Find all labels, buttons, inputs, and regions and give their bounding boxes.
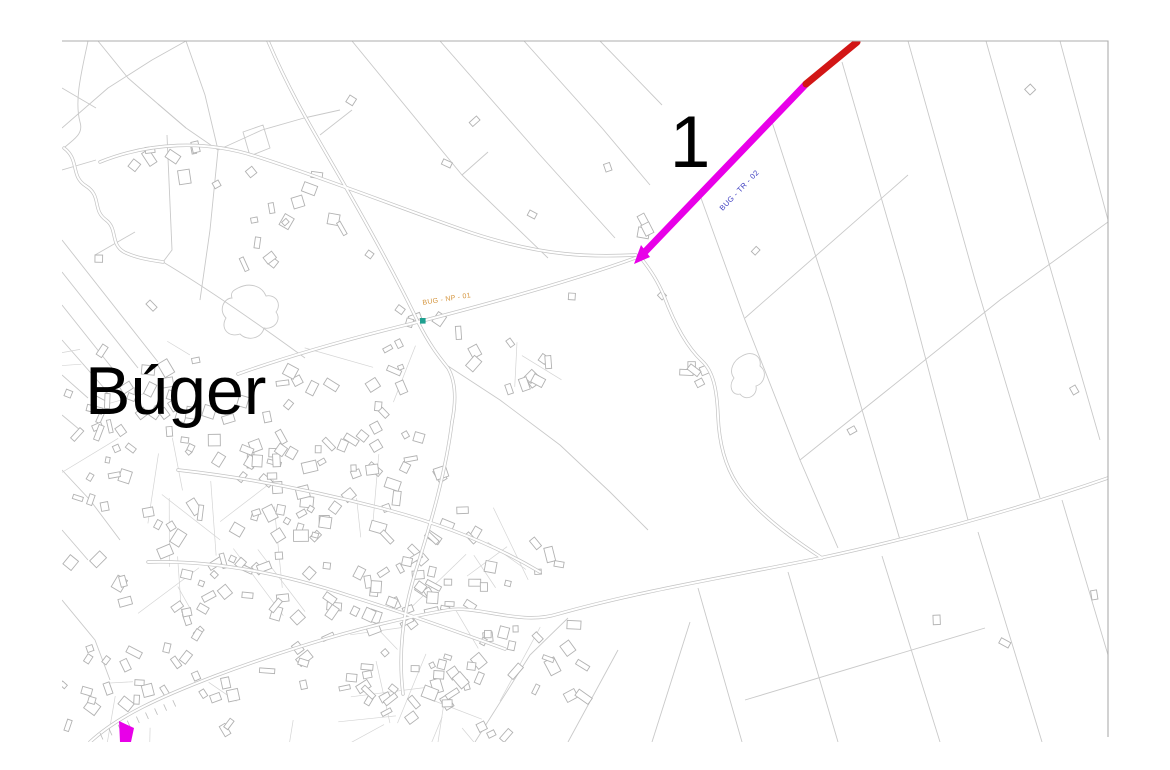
building	[267, 473, 277, 479]
building	[508, 663, 524, 679]
building	[64, 389, 73, 398]
building	[378, 407, 389, 418]
building	[208, 434, 220, 446]
building	[283, 517, 290, 525]
building	[695, 378, 705, 388]
parcel-line	[440, 41, 615, 238]
building	[427, 592, 439, 604]
building	[469, 116, 480, 126]
building	[575, 689, 592, 704]
building	[312, 532, 319, 538]
building	[445, 601, 454, 606]
parcel-line	[800, 222, 1108, 460]
building	[87, 494, 96, 506]
parcel-line	[788, 572, 838, 742]
building	[300, 680, 308, 690]
building	[273, 454, 281, 467]
terrace-tick	[146, 713, 149, 719]
building	[362, 671, 372, 679]
building	[365, 377, 380, 392]
parcel-line	[882, 556, 940, 742]
building	[293, 530, 308, 542]
building	[201, 591, 216, 603]
parcel-line	[62, 160, 96, 170]
village-lane	[6, 349, 80, 362]
building	[485, 630, 492, 637]
building	[467, 662, 476, 671]
building	[191, 629, 202, 641]
building	[157, 544, 174, 559]
building	[319, 516, 332, 529]
building	[182, 608, 192, 617]
building	[134, 695, 140, 704]
building	[999, 638, 1011, 648]
building	[366, 464, 379, 475]
building	[442, 700, 452, 707]
building	[87, 696, 96, 704]
building	[317, 458, 326, 466]
building	[369, 439, 382, 452]
building	[90, 551, 107, 568]
building	[210, 692, 222, 703]
building	[301, 182, 317, 196]
building	[112, 444, 120, 453]
building	[444, 654, 452, 660]
building	[197, 603, 209, 614]
building	[141, 683, 154, 697]
building	[384, 477, 401, 491]
parcel-line	[652, 622, 690, 742]
building	[125, 443, 136, 453]
parcel-line	[186, 41, 218, 150]
parcel-line	[62, 41, 186, 128]
parcel-line	[772, 122, 900, 540]
building	[86, 645, 94, 653]
building	[457, 507, 469, 514]
village-lane	[493, 508, 528, 580]
building	[229, 555, 237, 563]
building	[433, 671, 444, 680]
building	[484, 561, 497, 574]
building	[411, 666, 419, 672]
building	[315, 446, 321, 453]
village-lane	[15, 364, 82, 369]
terrace-tick	[173, 700, 176, 706]
building	[568, 293, 575, 300]
building	[1025, 84, 1036, 95]
parcel-line	[448, 366, 648, 530]
np-label: BUG - NP - 01	[422, 292, 471, 307]
parcel-line	[62, 530, 88, 560]
building	[361, 664, 373, 671]
building	[1070, 385, 1079, 395]
building	[135, 680, 145, 686]
parcel-line	[698, 588, 742, 742]
building	[242, 592, 253, 598]
building	[444, 579, 452, 585]
building	[401, 431, 409, 439]
building	[933, 615, 940, 625]
building	[474, 672, 484, 685]
building	[429, 662, 436, 669]
building	[120, 658, 132, 672]
building	[346, 673, 357, 682]
building	[271, 528, 286, 543]
parcel-line	[1060, 41, 1108, 220]
building	[254, 237, 261, 249]
building	[350, 606, 360, 617]
building	[226, 688, 239, 702]
parcel-line	[842, 62, 968, 520]
building	[455, 326, 461, 339]
parcel-line	[200, 150, 218, 300]
building	[118, 596, 133, 607]
building	[118, 696, 134, 712]
cadastral-map: BUG - TR - 02 BUG - NP - 01 Búger 1	[0, 0, 1170, 770]
building	[322, 437, 335, 451]
building	[445, 688, 459, 700]
building	[170, 529, 187, 547]
building	[103, 682, 113, 695]
route-area-fragment	[119, 721, 134, 742]
building	[221, 677, 231, 689]
parcel-line	[745, 175, 908, 318]
building	[63, 555, 79, 571]
parcel-line	[978, 532, 1042, 742]
building	[323, 378, 339, 392]
building	[513, 626, 518, 632]
road-centre	[90, 478, 1108, 742]
node-marker	[420, 318, 426, 324]
building	[380, 530, 394, 544]
parcel-line	[745, 628, 985, 700]
parcel-line	[701, 198, 838, 548]
building	[323, 562, 331, 569]
parcel-line	[62, 600, 110, 680]
building	[401, 557, 412, 567]
road-casing	[100, 145, 636, 255]
village-lane	[455, 608, 479, 648]
village-lane	[412, 717, 443, 770]
building	[437, 659, 447, 670]
building	[500, 728, 513, 742]
terrace-tick	[164, 704, 167, 710]
building	[441, 159, 452, 168]
building	[275, 429, 287, 444]
building	[199, 689, 208, 699]
village-lane	[285, 720, 293, 770]
route-line-alt	[806, 42, 857, 84]
road-centre	[100, 145, 636, 255]
parcel-line	[600, 41, 662, 105]
building	[351, 465, 357, 471]
building	[413, 432, 425, 444]
building	[498, 626, 510, 640]
building	[567, 620, 581, 629]
parcel-line	[163, 262, 305, 358]
building	[346, 95, 357, 106]
terrace-tick	[109, 729, 112, 735]
building	[395, 305, 405, 315]
map-viewport: BUG - TR - 02 BUG - NP - 01 Búger 1	[0, 0, 1170, 770]
building	[179, 650, 192, 664]
building	[86, 473, 94, 482]
building	[268, 203, 275, 214]
building	[83, 654, 92, 664]
building	[337, 221, 348, 235]
building	[544, 546, 556, 562]
pond-outline	[222, 285, 278, 338]
building	[381, 649, 389, 657]
building	[275, 552, 283, 559]
building	[576, 659, 590, 671]
pond-outline	[731, 354, 764, 398]
town-label: Búger	[85, 353, 266, 429]
building	[371, 581, 382, 593]
building	[81, 686, 93, 696]
village-lane	[211, 481, 216, 556]
building	[276, 380, 289, 386]
building	[408, 695, 421, 709]
building	[404, 456, 418, 463]
building	[505, 383, 514, 394]
parcel-line	[243, 125, 270, 156]
building	[1091, 590, 1098, 600]
building	[507, 641, 515, 651]
building	[259, 668, 275, 674]
building	[229, 522, 245, 537]
building	[392, 491, 401, 506]
building	[529, 537, 541, 550]
building	[126, 646, 142, 659]
building	[217, 584, 232, 599]
building	[506, 338, 515, 348]
building	[427, 566, 436, 577]
parcel-line	[524, 41, 650, 185]
road-centre	[268, 41, 455, 422]
building	[178, 169, 192, 185]
building	[527, 210, 537, 219]
building	[198, 580, 205, 587]
parcel-line	[1062, 500, 1108, 655]
building	[95, 255, 103, 262]
building	[100, 502, 109, 512]
building	[480, 583, 487, 592]
building	[466, 355, 482, 372]
village-lane	[515, 342, 517, 387]
building	[545, 356, 552, 369]
building	[60, 681, 68, 689]
building	[554, 561, 564, 568]
building	[339, 685, 351, 691]
parcel-line	[908, 41, 1040, 498]
building	[369, 421, 382, 434]
building	[365, 250, 374, 259]
building	[72, 494, 83, 501]
parcel-line	[98, 41, 186, 128]
building	[290, 610, 305, 625]
building	[191, 671, 200, 681]
building	[142, 507, 154, 518]
building	[154, 520, 163, 530]
building	[405, 711, 419, 724]
building	[399, 461, 410, 473]
building	[166, 521, 176, 531]
building	[283, 399, 293, 409]
building	[276, 504, 286, 515]
building	[181, 437, 189, 443]
building	[847, 426, 857, 435]
building	[302, 566, 316, 580]
zone-label: 1	[670, 102, 711, 183]
building	[49, 650, 61, 662]
building	[245, 166, 256, 177]
building	[170, 656, 181, 669]
building	[128, 159, 141, 172]
building	[105, 457, 110, 463]
building	[560, 640, 576, 656]
building	[250, 217, 258, 223]
building	[383, 345, 393, 353]
parcel-line	[64, 41, 88, 148]
building	[532, 684, 540, 695]
building	[751, 246, 760, 255]
building	[328, 501, 341, 515]
building	[469, 579, 481, 586]
terrace-tick	[136, 717, 139, 723]
village-lane	[149, 728, 150, 770]
building	[476, 721, 487, 732]
route-line-main	[641, 84, 806, 256]
building	[532, 632, 543, 643]
village-lane	[338, 716, 396, 722]
building	[224, 718, 234, 729]
building	[301, 460, 318, 474]
building	[180, 569, 192, 580]
route-label: BUG - TR - 02	[718, 168, 761, 212]
building	[64, 719, 72, 731]
building	[252, 455, 263, 467]
building	[239, 257, 249, 272]
village-lane	[172, 438, 182, 491]
building	[296, 509, 307, 518]
terrace-tick	[155, 708, 158, 714]
village-lane	[336, 725, 384, 751]
building	[146, 300, 157, 311]
building	[306, 380, 319, 395]
parcel-line	[462, 152, 488, 175]
parcel-line	[62, 415, 80, 430]
building	[212, 452, 226, 467]
building	[252, 509, 261, 517]
village-lane	[429, 699, 482, 719]
building	[395, 339, 404, 349]
building	[291, 195, 305, 209]
road-casing	[641, 258, 822, 558]
building	[71, 428, 84, 442]
building	[504, 580, 511, 587]
building	[377, 567, 389, 578]
building	[212, 180, 221, 189]
building	[163, 643, 171, 653]
building	[102, 656, 111, 665]
building	[210, 571, 218, 579]
building	[603, 162, 612, 172]
building	[487, 730, 496, 738]
road-casing	[90, 478, 1108, 742]
